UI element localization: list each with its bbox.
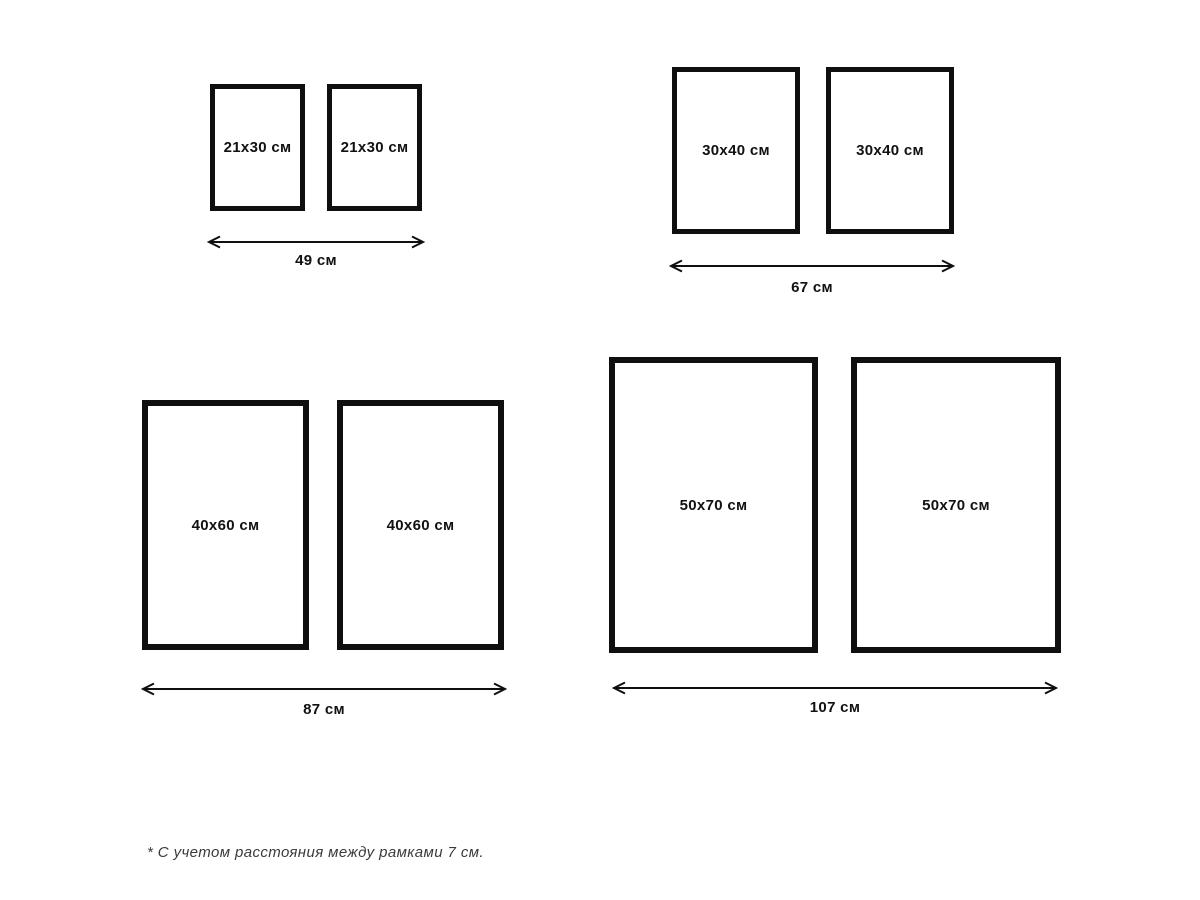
frame-set-40x60: 40x60 см 40x60 см 87 см [130,395,520,730]
spacing-footnote: * С учетом расстояния между рамками 7 см… [147,844,484,861]
frame-30x40-right: 30x40 см [826,67,954,234]
frame-set-21x30: 21x30 см 21x30 см 49 см [200,80,430,280]
frame-size-label: 50x70 см [680,497,748,514]
frame-size-label: 30x40 см [856,142,924,159]
width-dimension-arrow-icon [206,234,426,250]
width-dimension-arrow-icon [668,258,956,274]
frame-50x70-right: 50x70 см [851,357,1061,653]
frame-size-label: 40x60 см [192,517,260,534]
frame-size-label: 21x30 см [224,139,292,156]
width-dimension-arrow-icon [140,681,508,697]
total-width-label: 67 см [668,279,956,296]
frame-21x30-right: 21x30 см [327,84,422,211]
frame-50x70-left: 50x70 см [609,357,818,653]
total-width-label: 107 см [611,699,1059,716]
frame-set-50x70: 50x70 см 50x70 см 107 см [600,350,1070,725]
total-width-label: 49 см [206,252,426,269]
frame-size-label: 40x60 см [387,517,455,534]
frame-size-label: 30x40 см [702,142,770,159]
frame-size-label: 21x30 см [341,139,409,156]
total-width-label: 87 см [140,701,508,718]
frame-21x30-left: 21x30 см [210,84,305,211]
frame-40x60-right: 40x60 см [337,400,504,650]
frame-set-30x40: 30x40 см 30x40 см 67 см [660,60,960,310]
frame-30x40-left: 30x40 см [672,67,800,234]
width-dimension-arrow-icon [611,680,1059,696]
frame-sizes-diagram: 21x30 см 21x30 см 49 см 30x40 см 30x40 с… [0,0,1200,900]
frame-40x60-left: 40x60 см [142,400,309,650]
frame-size-label: 50x70 см [922,497,990,514]
